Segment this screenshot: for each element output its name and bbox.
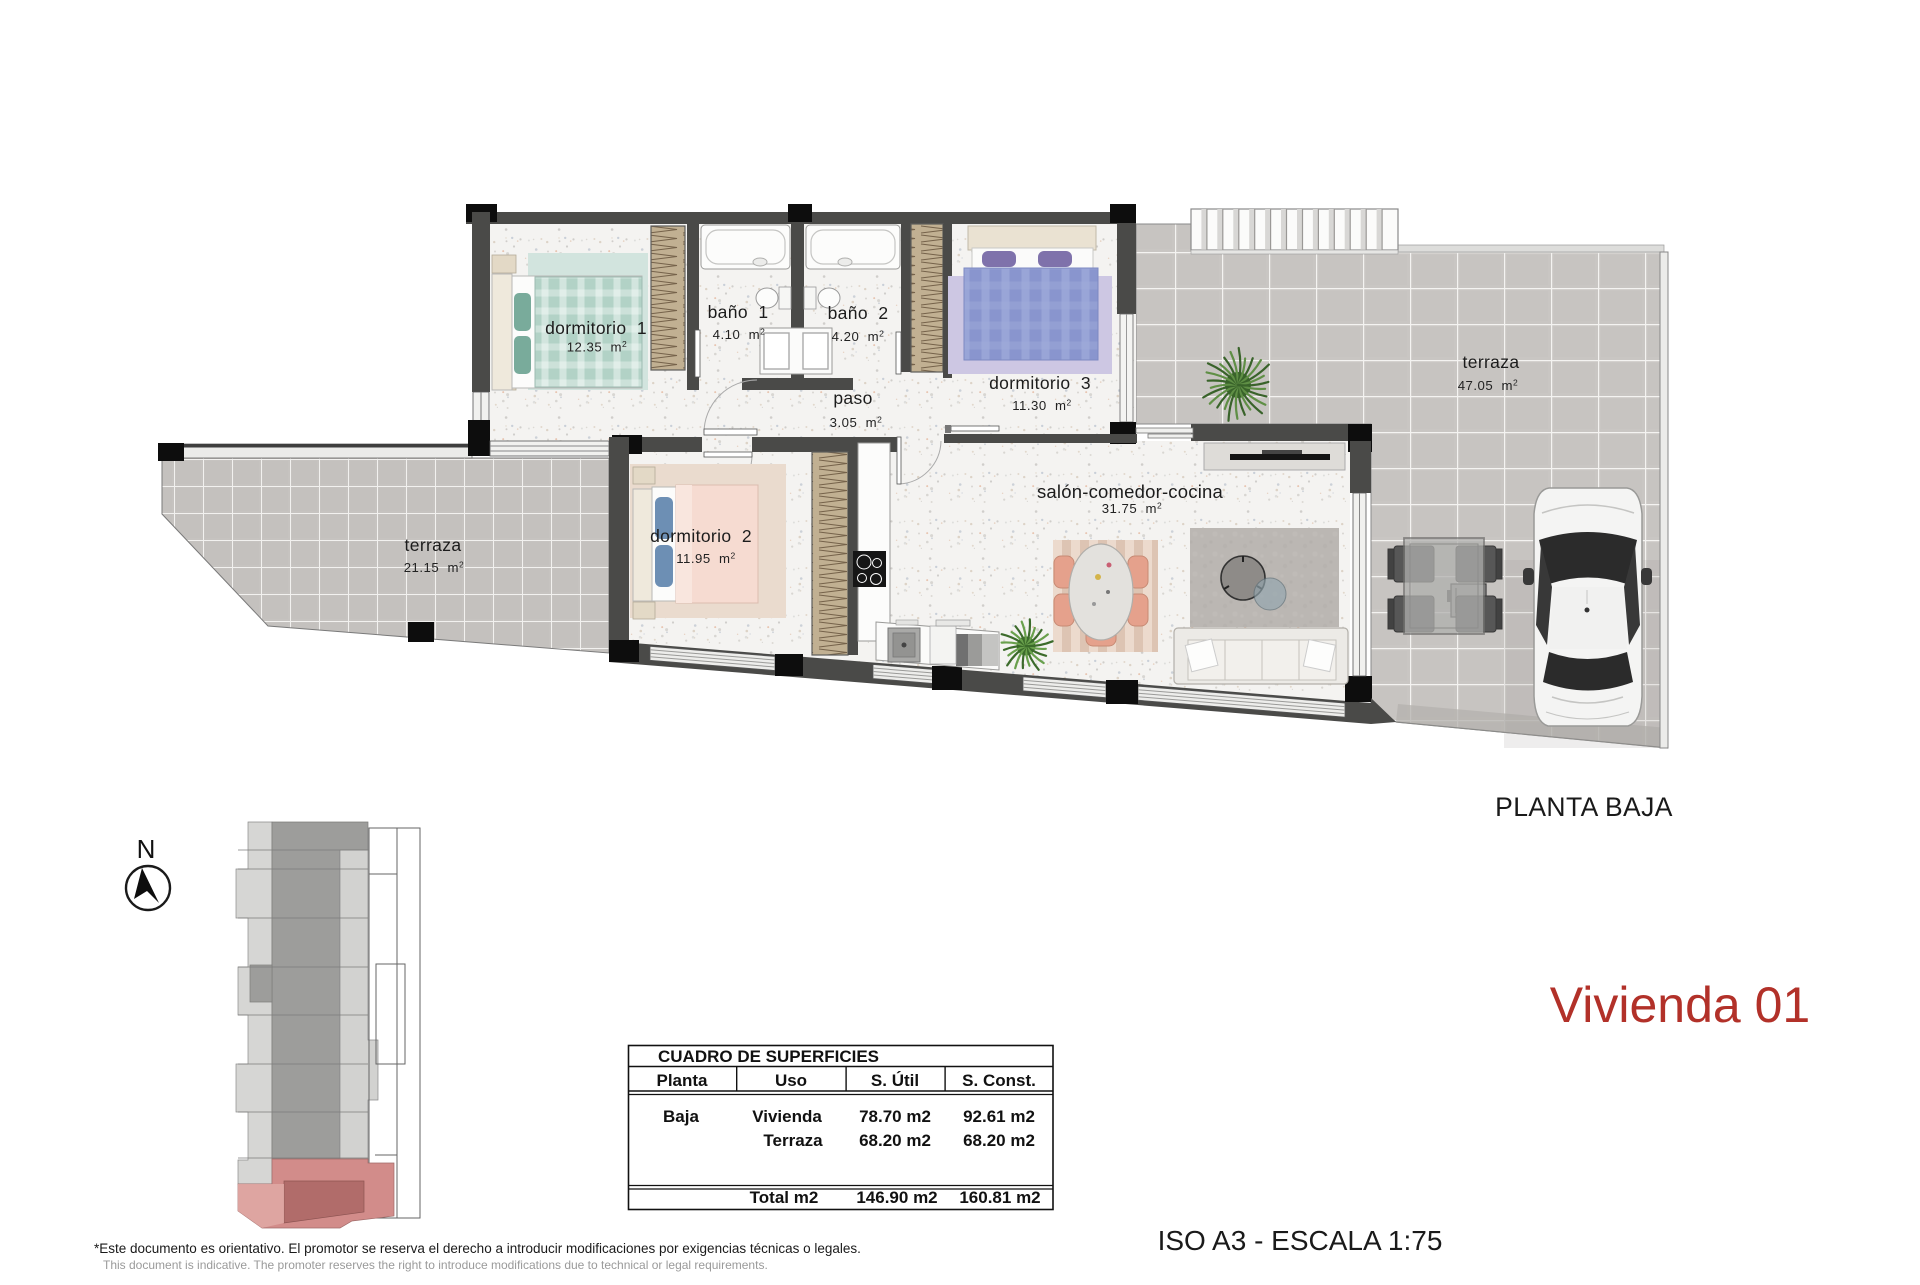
svg-text:78.70 m2: 78.70 m2 bbox=[859, 1107, 931, 1126]
svg-text:dormitorio 1: dormitorio 1 bbox=[545, 318, 647, 338]
svg-text:160.81 m2: 160.81 m2 bbox=[959, 1188, 1040, 1207]
svg-text:baño 1: baño 1 bbox=[708, 302, 769, 322]
svg-text:Uso: Uso bbox=[775, 1071, 807, 1090]
svg-text:4.20 m2: 4.20 m2 bbox=[832, 329, 885, 345]
svg-text:This document is indicative. T: This document is indicative. The promote… bbox=[103, 1258, 768, 1272]
svg-text:CUADRO DE SUPERFICIES: CUADRO DE SUPERFICIES bbox=[658, 1047, 879, 1066]
svg-text:dormitorio 3: dormitorio 3 bbox=[989, 373, 1091, 393]
svg-text:4.10 m2: 4.10 m2 bbox=[713, 327, 766, 343]
svg-text:terraza: terraza bbox=[405, 535, 462, 555]
svg-text:Vivienda 01: Vivienda 01 bbox=[1550, 977, 1810, 1033]
svg-text:146.90 m2: 146.90 m2 bbox=[856, 1188, 937, 1207]
svg-text:baño 2: baño 2 bbox=[828, 303, 889, 323]
svg-text:Planta: Planta bbox=[656, 1071, 708, 1090]
svg-text:68.20 m2: 68.20 m2 bbox=[859, 1131, 931, 1150]
svg-text:*Este documento es orientativo: *Este documento es orientativo. El promo… bbox=[94, 1241, 861, 1256]
svg-text:Vivienda: Vivienda bbox=[752, 1107, 822, 1126]
svg-text:Terraza: Terraza bbox=[763, 1131, 823, 1150]
svg-text:31.75 m2: 31.75 m2 bbox=[1102, 501, 1163, 517]
svg-text:11.30 m2: 11.30 m2 bbox=[1012, 398, 1072, 414]
svg-text:68.20 m2: 68.20 m2 bbox=[963, 1131, 1035, 1150]
svg-text:Total m2: Total m2 bbox=[750, 1188, 819, 1207]
svg-text:PLANTA BAJA: PLANTA BAJA bbox=[1495, 792, 1673, 822]
svg-text:21.15 m2: 21.15 m2 bbox=[404, 560, 465, 576]
svg-text:Baja: Baja bbox=[663, 1107, 699, 1126]
svg-text:N: N bbox=[137, 834, 156, 864]
svg-text:12.35 m2: 12.35 m2 bbox=[567, 339, 628, 355]
svg-text:ISO A3 - ESCALA 1:75: ISO A3 - ESCALA 1:75 bbox=[1158, 1225, 1443, 1256]
svg-text:92.61 m2: 92.61 m2 bbox=[963, 1107, 1035, 1126]
svg-text:47.05 m2: 47.05 m2 bbox=[1458, 378, 1519, 394]
svg-text:11.95 m2: 11.95 m2 bbox=[676, 551, 736, 567]
svg-text:S. Const.: S. Const. bbox=[962, 1071, 1036, 1090]
svg-text:salón-comedor-cocina: salón-comedor-cocina bbox=[1037, 481, 1224, 502]
svg-text:terraza: terraza bbox=[1463, 352, 1520, 372]
svg-text:3.05 m2: 3.05 m2 bbox=[830, 415, 883, 431]
svg-text:paso: paso bbox=[833, 388, 872, 408]
svg-text:S. Útil: S. Útil bbox=[871, 1071, 919, 1090]
svg-text:dormitorio 2: dormitorio 2 bbox=[650, 526, 752, 546]
